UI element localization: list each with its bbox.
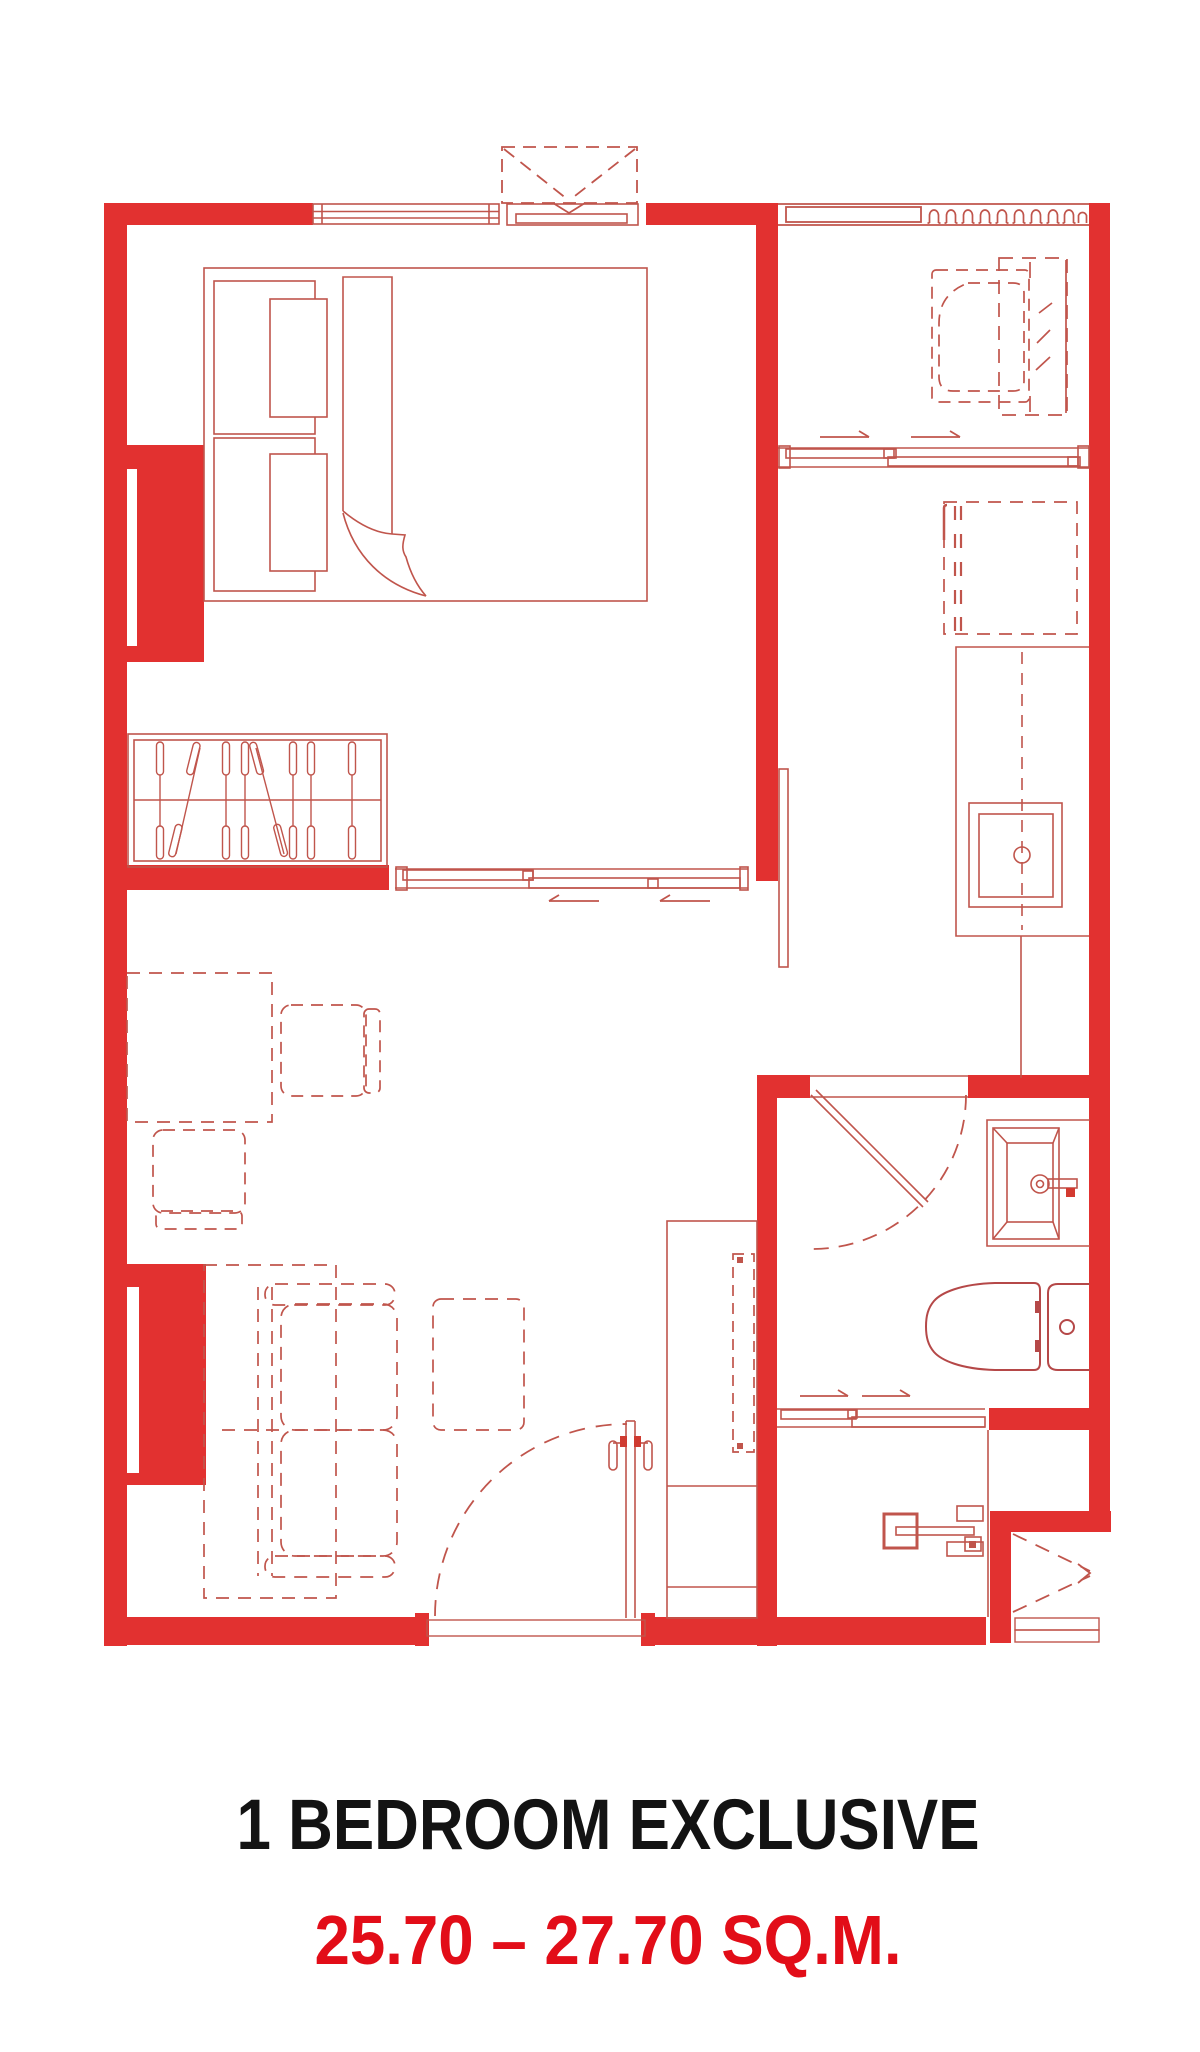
- svg-text:25.70 – 27.70 SQ.M.: 25.70 – 27.70 SQ.M.: [315, 1901, 902, 1979]
- svg-text:1 BEDROOM EXCLUSIVE: 1 BEDROOM EXCLUSIVE: [237, 1786, 980, 1865]
